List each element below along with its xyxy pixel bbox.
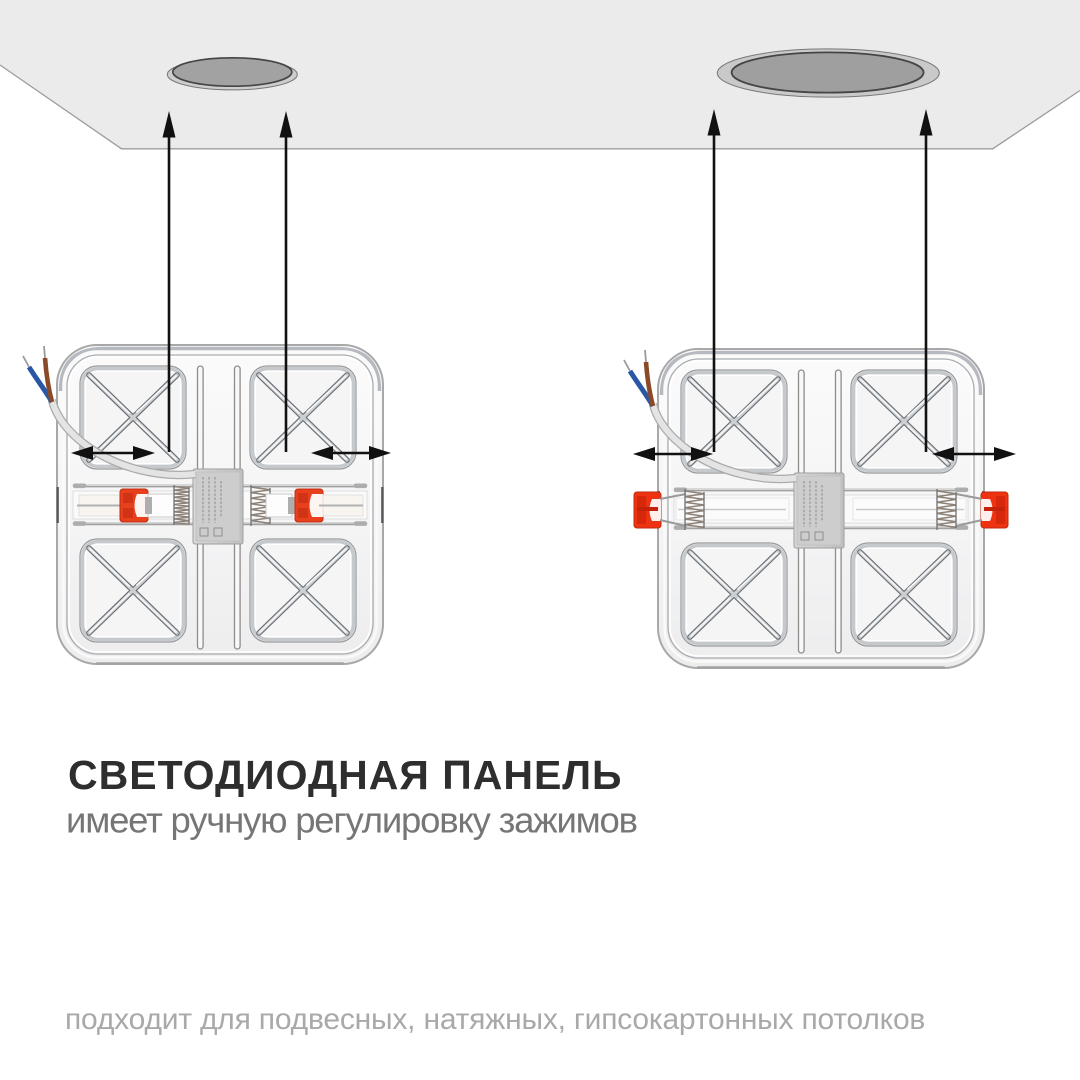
svg-text:подходит для подвесных, натяжн: подходит для подвесных, натяжных, гипсок… [65,1003,925,1036]
svg-text:имеет ручную регулировку зажим: имеет ручную регулировку зажимов [66,800,637,841]
svg-text:СВЕТОДИОДНАЯ ПАНЕЛЬ: СВЕТОДИОДНАЯ ПАНЕЛЬ [68,752,623,798]
